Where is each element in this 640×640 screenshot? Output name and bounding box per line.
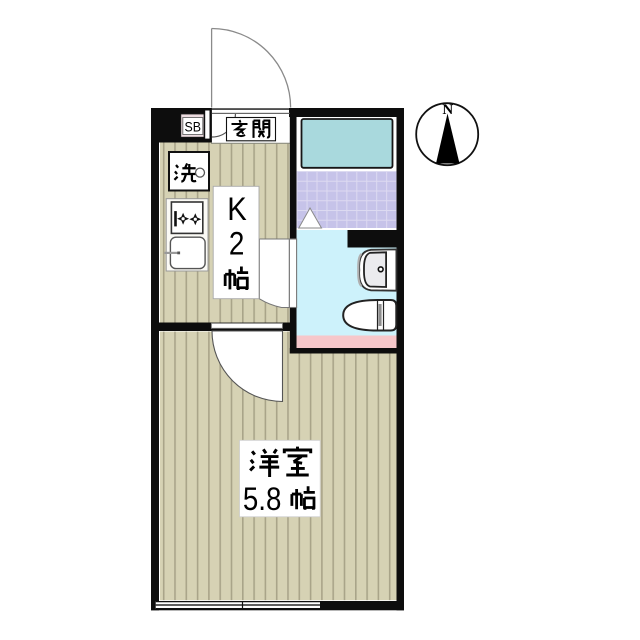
svg-text:SB: SB <box>185 118 202 134</box>
svg-text:5.8: 5.8 <box>243 481 282 517</box>
svg-text:K: K <box>227 191 247 227</box>
svg-text:2: 2 <box>229 226 245 262</box>
svg-text:N: N <box>442 102 453 118</box>
